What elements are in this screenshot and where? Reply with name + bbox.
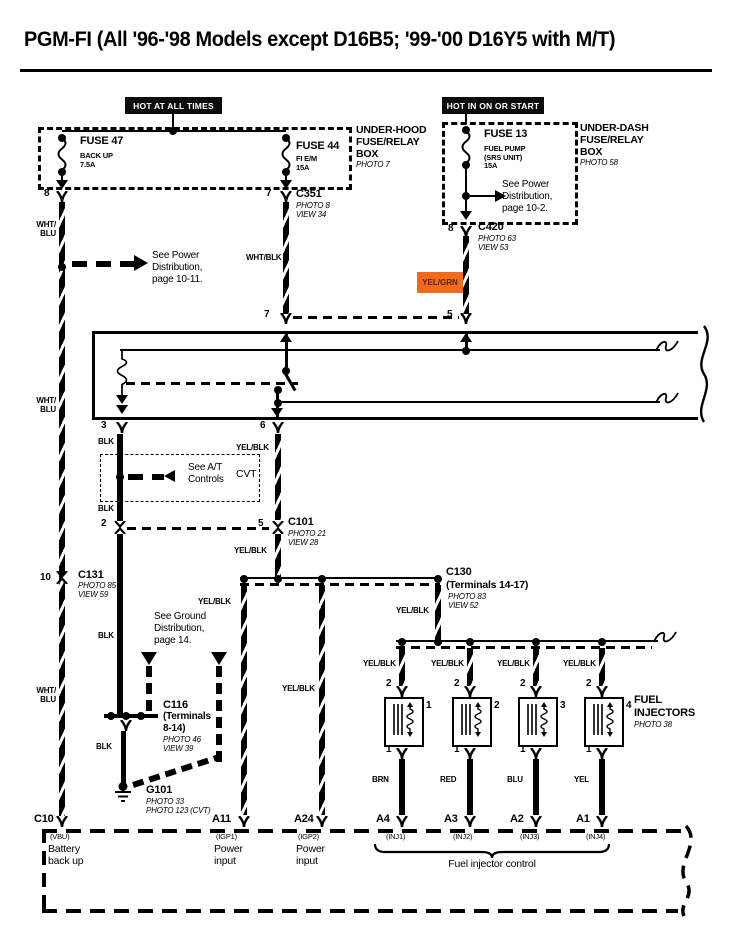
injector-bus-dashed	[396, 646, 652, 649]
wire-label-yel-blk-4: YEL/BLK	[282, 684, 315, 693]
relay-switch-arm	[283, 370, 297, 391]
fuel-injectors-label: FUEL INJECTORS	[634, 694, 695, 720]
inj2-coil-icon	[454, 699, 486, 740]
ecm-a1-connector-icon	[595, 816, 609, 827]
inj1-wire-color: BRN	[372, 775, 389, 784]
inj3-pin2-label: 2	[520, 678, 525, 690]
c420-name: C420	[478, 221, 504, 234]
at-controls-note: See A/T Controls	[188, 462, 224, 486]
wire-label-blk-3: BLK	[98, 631, 114, 640]
relay-line-upper	[120, 349, 660, 351]
ecm-terminal-c10: C10	[34, 813, 54, 826]
bus-junction-dot	[169, 127, 177, 135]
wire-break-curl-1	[656, 338, 680, 358]
c131-view: VIEW 59	[78, 590, 108, 600]
c130-bus-dashed	[240, 583, 440, 586]
at-controls-dot	[116, 473, 124, 481]
inj2-number: 2	[494, 700, 499, 712]
c116-connector-icon	[119, 720, 133, 731]
inj1-bottom-connector-icon	[395, 748, 409, 759]
ground-dist-arrow-1	[141, 652, 157, 665]
ecm-box-bottom	[42, 909, 678, 913]
inj1-number: 1	[426, 700, 431, 712]
wire-label-wht-blu-1: WHT/ BLU	[34, 220, 56, 239]
relay-pin6-connector-icon	[271, 422, 285, 433]
inj1-top-wire	[399, 648, 405, 686]
wire-label-wht-blk: WHT/BLK	[246, 253, 281, 262]
c351-pin7: 7	[266, 188, 271, 200]
inj-bus-dot-4	[532, 638, 540, 646]
hot-in-on-or-start-banner: HOT IN ON OR START	[442, 97, 544, 114]
wire-blk-3	[117, 534, 123, 714]
title-rule	[20, 69, 712, 72]
relay-line-lower-dot	[274, 399, 282, 407]
relay-pin6-label: 6	[260, 420, 265, 432]
c420-pin8: 8	[448, 223, 453, 235]
ecm-code-vbu: (VBU)	[50, 833, 69, 842]
relay-pin7-label: 7	[264, 309, 269, 321]
ecm-desc-igp1: Power input	[214, 843, 243, 868]
relay-box-bottom	[92, 417, 698, 420]
inj1-top-wire-label: YEL/BLK	[363, 659, 396, 668]
c351-view: VIEW 34	[296, 210, 326, 220]
fuse13-symbol	[459, 131, 473, 163]
inj4-top-wire	[599, 648, 605, 686]
ecm-code-igp1: (IGP1)	[216, 833, 237, 842]
c131-pin-label: 10	[40, 572, 51, 584]
ecm-code-inj2: (INJ2)	[453, 833, 472, 842]
inj1-coil-icon	[386, 699, 418, 740]
relay-pin5-label: 5	[447, 309, 452, 321]
ground-symbol-icon	[113, 782, 139, 803]
inj4-pin2-label: 2	[586, 678, 591, 690]
inj2-top-connector-icon	[463, 686, 477, 697]
inj-bus-dot-2	[434, 638, 442, 646]
power-dist1-dot	[58, 263, 66, 271]
wire-ground-dashed-2	[216, 666, 222, 762]
underdash-box-label: UNDER-DASH FUSE/RELAY BOX	[580, 122, 649, 159]
g101-photo2: PHOTO 123 (CVT)	[146, 806, 210, 816]
fuse13-desc: FUEL PUMP (SRS UNIT) 15A	[484, 145, 525, 171]
fuel-injectors-photo: PHOTO 38	[634, 720, 672, 730]
inj3-number: 3	[560, 700, 565, 712]
c351-name: C351	[296, 188, 322, 201]
relay-coil-arrow-2	[116, 405, 128, 414]
fuse13-branch-dot	[462, 192, 470, 200]
fuse47-exit-arrow	[56, 180, 68, 189]
ecm-code-inj4: (INJ4)	[586, 833, 605, 842]
inj2-top-wire-label: YEL/BLK	[431, 659, 464, 668]
power-dist2-arrow-line	[470, 195, 496, 197]
relay-box-torn-edge	[692, 324, 718, 424]
c101-pin2-connector-icon	[113, 521, 127, 534]
fuse44-exit-arrow	[280, 180, 292, 189]
c130-name: C130	[446, 566, 472, 579]
power-dist1-arrowhead	[134, 255, 148, 271]
relay-line-lower	[277, 401, 660, 403]
wire-wht-blu	[59, 202, 65, 816]
hot-at-all-times-banner: HOT AT ALL TIMES	[125, 97, 222, 114]
fuse13-stem	[465, 167, 467, 215]
inj3-bottom-wire	[533, 759, 539, 815]
fuse13-name: FUSE 13	[484, 128, 527, 141]
c101-view: VIEW 28	[288, 538, 318, 548]
c116-view: VIEW 39	[163, 744, 193, 754]
c116-sub: (Terminals 8-14)	[163, 711, 211, 734]
inj3-bottom-connector-icon	[529, 748, 543, 759]
ecm-code-igp2: (IGP2)	[298, 833, 319, 842]
ecm-a3-connector-icon	[463, 816, 477, 827]
inj-bus-dot-3	[466, 638, 474, 646]
c130-dot-4	[434, 575, 442, 583]
inj3-top-wire	[533, 648, 539, 686]
ecm-desc-vbu: Battery back up	[48, 843, 83, 868]
fuse44-name: FUSE 44	[296, 140, 339, 153]
ecm-a24-connector-icon	[315, 816, 329, 827]
wire-label-blk-4: BLK	[96, 742, 112, 751]
inj2-pin2-label: 2	[454, 678, 459, 690]
inj4-number: 4	[626, 700, 631, 712]
inj2-bottom-wire	[467, 759, 473, 815]
c130-bus-line	[240, 577, 440, 579]
inj3-pin1-label: 1	[520, 744, 525, 756]
page-title: PGM-FI (All '96-'98 Models except D16B5;…	[24, 28, 615, 52]
inj1-top-connector-icon	[395, 686, 409, 697]
underhood-box-photo: PHOTO 7	[356, 160, 390, 170]
g101-name: G101	[146, 784, 172, 797]
inj4-top-wire-label: YEL/BLK	[563, 659, 596, 668]
c101-name: C101	[288, 516, 314, 529]
fuel-injector-control-label: Fuel injector control	[372, 858, 612, 870]
ecm-terminal-a24: A24	[294, 813, 314, 826]
wire-label-yel-blk-3: YEL/BLK	[198, 597, 231, 606]
ecm-box-torn-edge	[670, 824, 704, 918]
c130-dot-3	[318, 575, 326, 583]
inj4-wire-color: YEL	[574, 775, 589, 784]
wiring-diagram-page: PGM-FI (All '96-'98 Models except D16B5;…	[0, 0, 731, 951]
wire-break-curl-3	[654, 629, 678, 649]
relay-box-top	[92, 331, 698, 334]
c131-name: C131	[78, 569, 104, 582]
inj4-top-connector-icon	[595, 686, 609, 697]
wire-label-yel-grn-highlight: YEL/GRN	[417, 272, 463, 293]
ecm-a11-connector-icon	[237, 816, 251, 827]
relay-pin3-label: 3	[101, 420, 106, 432]
wire-label-wht-blu-3: WHT/ BLU	[34, 686, 56, 705]
wire-break-curl-2	[656, 390, 680, 410]
c130-dot-1	[240, 575, 248, 583]
wire-label-wht-blu-2: WHT/ BLU	[34, 396, 56, 415]
inj3-top-connector-icon	[529, 686, 543, 697]
relay-pin5-entry-arrow	[460, 333, 472, 342]
power-dist1-dashes	[72, 261, 134, 267]
inj2-bottom-connector-icon	[463, 748, 477, 759]
c116-dot-3	[137, 712, 145, 720]
ecm-a4-connector-icon	[395, 816, 409, 827]
c130-view: VIEW 52	[448, 601, 478, 611]
relay-pin5-connector-icon	[459, 313, 473, 324]
inj4-bottom-connector-icon	[595, 748, 609, 759]
c116-name: C116	[163, 699, 188, 712]
ground-dist-arrow-2	[211, 652, 227, 665]
wire-label-blk-2: BLK	[98, 504, 114, 513]
ecm-c10-connector-icon	[55, 816, 69, 827]
relay-box-left	[92, 331, 95, 419]
fuse44-symbol	[279, 138, 293, 170]
relay-pin6-exit-arrow	[271, 408, 283, 417]
fuse47-symbol	[55, 138, 69, 170]
c101-pin5-connector-icon	[271, 521, 285, 534]
relay-connector-dashed-line	[293, 316, 459, 319]
wire-wht-blk	[283, 202, 289, 314]
c101-pin2-label: 2	[101, 518, 106, 530]
fuse47-name: FUSE 47	[80, 135, 123, 148]
inj1-bottom-wire	[399, 759, 405, 815]
inj1-pin1-label: 1	[386, 744, 391, 756]
inj2-wire-color: RED	[440, 775, 456, 784]
c130-dot-2	[274, 575, 282, 583]
inj3-wire-color: BLU	[507, 775, 523, 784]
relay-pin7-connector-icon	[279, 313, 293, 324]
fuel-injector-bracket	[372, 843, 612, 859]
power-dist2-note: See Power Distribution, page 10-2.	[502, 179, 552, 214]
inj-bus-dot-1	[398, 638, 406, 646]
relay-linkage-dashed	[126, 382, 298, 385]
c101-pin5-label: 5	[258, 518, 263, 530]
inj4-coil-icon	[586, 699, 618, 740]
c116-dot-2	[122, 712, 130, 720]
relay-pin3-connector-icon	[115, 422, 129, 433]
cvt-label: CVT	[236, 468, 256, 480]
at-controls-dashes	[128, 474, 164, 480]
power-dist1-note: See Power Distribution, page 10-11.	[152, 250, 202, 285]
c351-pin8: 8	[44, 188, 49, 200]
fuse47-desc: BACK UP 7.5A	[80, 152, 113, 169]
ecm-code-inj1: (INJ1)	[386, 833, 405, 842]
wire-yel-blk-1	[275, 434, 281, 520]
inj4-bottom-wire	[599, 759, 605, 815]
wire-yel-grn	[463, 236, 469, 314]
relay-coil-icon	[111, 349, 133, 395]
ecm-terminal-a4: A4	[376, 813, 390, 826]
ecm-terminal-a2: A2	[510, 813, 524, 826]
relay-pin7-entry-arrow	[280, 333, 292, 342]
ecm-box-left	[42, 829, 46, 913]
inj4-pin1-label: 1	[586, 744, 591, 756]
wire-label-yel-blk-1: YEL/BLK	[236, 443, 269, 452]
c101-dashed-line	[127, 527, 269, 530]
c420-view: VIEW 53	[478, 243, 508, 253]
wire-ground-diagonal	[132, 754, 221, 788]
c131-connector-icon	[55, 571, 69, 584]
c351-pin7-connector-icon	[279, 191, 293, 202]
wire-label-blk-1: BLK	[98, 437, 114, 446]
wire-blk-ground	[121, 731, 126, 786]
c116-dot-1	[107, 712, 115, 720]
inj-bus-dot-5	[598, 638, 606, 646]
wire-label-yel-blk-2: YEL/BLK	[234, 546, 267, 555]
at-controls-arrowhead	[164, 470, 175, 482]
underdash-box-photo: PHOTO 58	[580, 158, 618, 168]
underhood-box-label: UNDER-HOOD FUSE/RELAY BOX	[356, 124, 426, 161]
ecm-terminal-a1: A1	[576, 813, 590, 826]
c130-sub: (Terminals 14-17)	[446, 579, 528, 591]
wire-label-yel-blk-5: YEL/BLK	[396, 606, 429, 615]
inj2-pin1-label: 1	[454, 744, 459, 756]
ecm-a2-connector-icon	[529, 816, 543, 827]
inj2-top-wire	[467, 648, 473, 686]
ecm-terminal-a11: A11	[212, 813, 231, 826]
fuse13-exit-arrow	[460, 211, 472, 220]
wire-ground-dashed-1	[146, 666, 152, 714]
ecm-desc-igp2: Power input	[296, 843, 325, 868]
wire-yel-blk-a11	[241, 585, 247, 815]
relay-line-upper-dot	[462, 347, 470, 355]
relay-coil-arrow-1	[116, 395, 128, 404]
inj3-coil-icon	[520, 699, 552, 740]
inj3-top-wire-label: YEL/BLK	[497, 659, 530, 668]
wire-yel-blk-2	[275, 534, 281, 578]
ecm-code-inj3: (INJ3)	[520, 833, 539, 842]
ground-dist-note: See Ground Distribution, page 14.	[154, 611, 206, 646]
inj1-pin2-label: 2	[386, 678, 391, 690]
fuse44-desc: FI E/M 15A	[296, 155, 317, 172]
c351-pin8-connector-icon	[55, 191, 69, 202]
wire-yel-blk-a24	[319, 585, 325, 815]
ecm-terminal-a3: A3	[444, 813, 458, 826]
wire-yel-blk-to-inj-bus	[435, 585, 441, 640]
